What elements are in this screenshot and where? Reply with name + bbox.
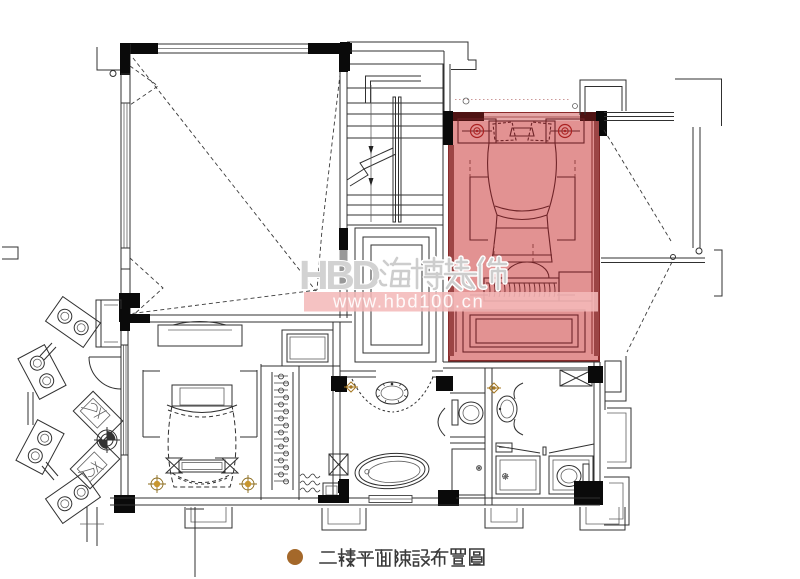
svg-text:HBD: HBD — [299, 252, 381, 298]
